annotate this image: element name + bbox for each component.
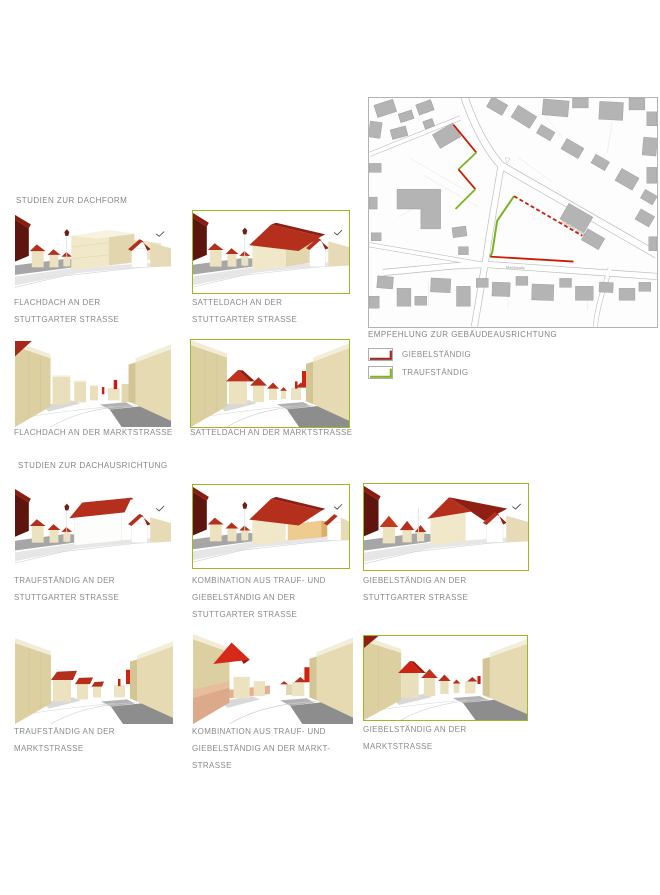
panel-giebelstaendig-stuttgarter: [363, 483, 529, 571]
panel-satteldach-markt: [190, 339, 350, 428]
left-houses: [208, 518, 250, 542]
legend-label: TRAUFSTÄNDIG: [402, 368, 468, 377]
tree-icon: [242, 228, 247, 235]
caption-line: STUTTGARTER STRASSE: [363, 589, 468, 606]
legend-item-traufstaendig: TRAUFSTÄNDIG: [368, 366, 468, 379]
street-pole: [66, 509, 67, 542]
legend-label: GIEBELSTÄNDIG: [402, 350, 471, 359]
scene-satteldach-markt-image: [191, 340, 349, 427]
tree-icon: [242, 502, 247, 509]
right-houses: [324, 514, 349, 540]
dark-corner-building: [193, 487, 209, 535]
panel-caption: TRAUFSTÄNDIG AN DER MARKTSTRASSE: [14, 723, 115, 757]
caption-line: GIEBELSTÄNDIG AN DER: [192, 589, 326, 606]
caption-line: GIEBELSTÄNDIG AN DER MARKT-: [192, 740, 330, 757]
tree-icon: [512, 504, 520, 509]
tree-icon: [64, 229, 69, 236]
scene-flachdach-markt-image: [15, 341, 171, 427]
giebelstaendig-swatch-icon: [368, 348, 393, 361]
scene-traufstaendig-markt-image: [15, 638, 173, 724]
tree-icon: [156, 232, 164, 237]
panel-caption: FLACHDACH AN DER MARKTSTRASSE: [14, 424, 173, 441]
scene-giebelstaendig-stuttgarter-image: [364, 484, 528, 570]
middle-gable-front-houses: [398, 661, 481, 698]
left-houses: [30, 519, 72, 542]
panel-kombination-markt: [192, 633, 354, 725]
panel-caption: KOMBINATION AUS TRAUF- UND GIEBELSTÄNDIG…: [192, 572, 326, 623]
caption-line: KOMBINATION AUS TRAUF- UND: [192, 723, 330, 740]
traufstaendig-swatch-icon: [368, 366, 393, 379]
site-map-image: Marktstraße Stuttgarter Straße: [369, 98, 657, 327]
caption-line: SATTELDACH AN DER MARKTSTRASSE: [190, 424, 352, 441]
street-pole: [66, 235, 67, 267]
panel-caption: SATTELDACH AN DER STUTTGARTER STRASSE: [192, 294, 297, 328]
dark-corner-building: [364, 486, 381, 536]
dark-corner-building: [193, 213, 209, 261]
caption-line: STUTTGARTER STRASSE: [14, 589, 119, 606]
panel-caption: GIEBELSTÄNDIG AN DER STUTTGARTER STRASSE: [363, 572, 468, 606]
caption-line: GIEBELSTÄNDIG AN DER: [363, 721, 466, 738]
legend-item-giebelstaendig: GIEBELSTÄNDIG: [368, 348, 471, 361]
caption-line: GIEBELSTÄNDIG AN DER: [363, 572, 468, 589]
middle-gable-houses: [226, 370, 307, 404]
panel-caption: TRAUFSTÄNDIG AN DER STUTTGARTER STRASSE: [14, 572, 119, 606]
street-pole: [418, 508, 419, 543]
panel-traufstaendig-stuttgarter: [14, 486, 172, 570]
panel-giebelstaendig-markt: [363, 635, 528, 721]
caption-line: FLACHDACH AN DER: [14, 294, 119, 311]
scene-traufstaendig-stuttgarter-image: [15, 487, 171, 569]
panel-flachdach-markt: [14, 340, 172, 428]
middle-eave-houses: [51, 670, 131, 702]
caption-line: TRAUFSTÄNDIG AN DER: [14, 572, 119, 589]
scene-satteldach-stuttgarter-image: [193, 211, 349, 293]
left-houses: [208, 243, 250, 266]
street-label-marktstrasse: Marktstraße: [506, 266, 525, 271]
section-heading-dachausrichtung: STUDIEN ZUR DACHAUSRICHTUNG: [18, 461, 168, 470]
scene-flachdach-stuttgarter-image: [15, 213, 171, 293]
legend-title: EMPFEHLUNG ZUR GEBÄUDEAUSRICHTUNG: [368, 330, 557, 339]
tree-icon: [64, 504, 69, 511]
caption-line: TRAUFSTÄNDIG AN DER: [14, 723, 115, 740]
panel-caption: GIEBELSTÄNDIG AN DER MARKTSTRASSE: [363, 721, 466, 755]
middle-houses: [234, 667, 310, 698]
panel-caption: KOMBINATION AUS TRAUF- UND GIEBELSTÄNDIG…: [192, 723, 330, 774]
eave-side-roof-block: [69, 498, 133, 546]
panel-traufstaendig-markt: [14, 637, 174, 725]
left-houses: [30, 244, 72, 267]
scene-kombination-stuttgarter-image: [193, 485, 349, 568]
left-gable-houses: [380, 516, 427, 544]
middle-flat-houses: [53, 375, 134, 404]
section-heading-dachform: STUDIEN ZUR DACHFORM: [16, 196, 127, 205]
page-root: STUDIEN ZUR DACHFORM STUDIEN ZUR DACHAUS…: [0, 0, 660, 895]
panel-flachdach-stuttgarter: [14, 212, 172, 294]
caption-line: STUTTGARTER STRASSE: [192, 606, 326, 623]
panel-caption: FLACHDACH AN DER STUTTGARTER STRASSE: [14, 294, 119, 328]
caption-line: STRASSE: [192, 757, 330, 774]
panel-caption: SATTELDACH AN DER MARKTSTRASSE: [190, 424, 352, 441]
street-pole: [244, 508, 245, 542]
caption-line: STUTTGARTER STRASSE: [14, 311, 119, 328]
street-pole: [244, 233, 245, 266]
caption-line: KOMBINATION AUS TRAUF- UND: [192, 572, 326, 589]
caption-line: STUTTGARTER STRASSE: [192, 311, 297, 328]
caption-line: FLACHDACH AN DER MARKTSTRASSE: [14, 424, 173, 441]
tree-icon: [334, 504, 342, 509]
site-map: Marktstraße Stuttgarter Straße: [368, 97, 658, 328]
panel-satteldach-stuttgarter: [192, 210, 350, 294]
dark-corner-building: [15, 489, 31, 537]
tree-icon: [156, 506, 164, 511]
dark-corner-building: [15, 215, 31, 262]
tree-icon: [334, 230, 342, 235]
caption-line: SATTELDACH AN DER: [192, 294, 297, 311]
caption-line: MARKTSTRASSE: [363, 738, 466, 755]
panel-kombination-stuttgarter: [192, 484, 350, 569]
caption-line: MARKTSTRASSE: [14, 740, 115, 757]
scene-kombination-markt-image: [193, 634, 353, 724]
map-background: [369, 98, 656, 327]
scene-giebelstaendig-markt-image: [364, 636, 527, 720]
